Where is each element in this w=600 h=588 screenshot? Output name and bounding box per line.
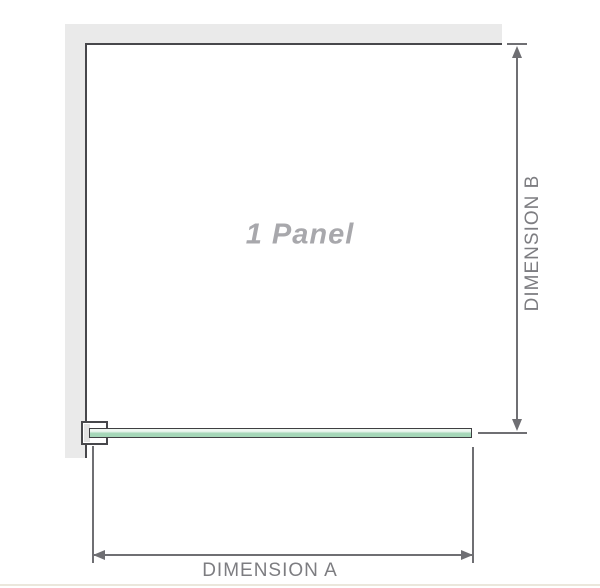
dim-a-extension-left [92,446,94,563]
dim-a-arrow-left-icon [93,550,105,560]
dim-a-arrow-right-icon [461,550,473,560]
dim-a-extension-right [472,447,474,563]
dim-b-label: DIMENSION B [522,175,544,312]
dim-b-arrow-down-icon [512,419,522,431]
dim-a-line [94,554,472,556]
wall-left [65,24,85,458]
dim-b-arrow-up-icon [512,46,522,58]
panel-outline-left [85,43,87,458]
panel-outline-top [85,43,502,45]
panel-title: 1 Panel [246,219,355,252]
dim-a-label: DIMENSION A [202,560,338,582]
shower-panel-diagram: 1 Panel DIMENSION B DIMENSION A [0,0,600,588]
dim-b-tick-bottom [478,432,527,434]
dim-b-tick-top [507,43,527,45]
wall-top [65,24,502,43]
footer-divider [0,584,600,586]
dim-b-line [516,50,518,426]
glass-panel-bar [89,428,472,438]
